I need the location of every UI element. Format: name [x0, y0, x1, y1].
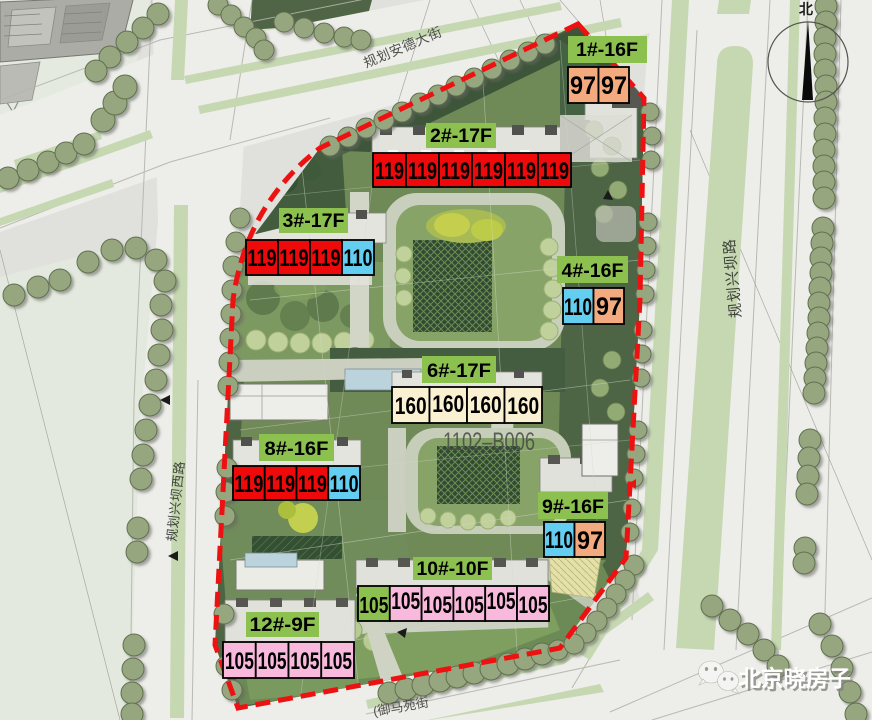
- svg-text:105: 105: [225, 648, 254, 675]
- svg-text:160: 160: [432, 391, 464, 418]
- svg-text:119: 119: [280, 245, 309, 272]
- svg-text:160: 160: [470, 392, 502, 419]
- svg-text:1#-16F: 1#-16F: [576, 40, 638, 61]
- svg-text:105: 105: [359, 592, 388, 618]
- svg-text:105: 105: [258, 648, 287, 675]
- svg-text:4#-16F: 4#-16F: [562, 261, 624, 282]
- svg-text:97: 97: [596, 293, 622, 321]
- svg-text:9#-16F: 9#-16F: [542, 497, 604, 518]
- svg-text:8#-16F: 8#-16F: [265, 439, 329, 460]
- svg-text:119: 119: [298, 471, 327, 498]
- svg-text:119: 119: [266, 471, 295, 498]
- svg-text:160: 160: [507, 393, 539, 420]
- svg-text:97: 97: [601, 72, 627, 100]
- svg-text:119: 119: [441, 158, 470, 185]
- svg-text:110: 110: [344, 245, 373, 272]
- svg-text:119: 119: [375, 158, 404, 185]
- svg-text:105: 105: [455, 592, 484, 619]
- svg-text:2#-17F: 2#-17F: [430, 126, 492, 147]
- svg-text:10#-10F: 10#-10F: [417, 559, 489, 580]
- svg-text:110: 110: [330, 471, 359, 498]
- svg-text:97: 97: [577, 527, 603, 555]
- svg-text:105: 105: [323, 648, 352, 675]
- svg-text:12#-9F: 12#-9F: [250, 615, 316, 636]
- svg-text:119: 119: [234, 471, 263, 498]
- svg-text:6#-17F: 6#-17F: [427, 361, 491, 382]
- svg-text:119: 119: [507, 158, 536, 185]
- svg-text:110: 110: [545, 527, 573, 554]
- svg-text:160: 160: [395, 393, 427, 420]
- svg-text:105: 105: [487, 588, 516, 615]
- svg-text:97: 97: [570, 72, 596, 100]
- svg-text:110: 110: [564, 294, 592, 321]
- svg-text:105: 105: [423, 592, 452, 619]
- svg-text:1102–B006: 1102–B006: [443, 428, 535, 456]
- svg-text:119: 119: [248, 245, 277, 272]
- svg-text:119: 119: [540, 158, 569, 185]
- svg-text:北: 北: [799, 1, 813, 17]
- svg-text:3#-17F: 3#-17F: [283, 211, 345, 232]
- svg-text:119: 119: [408, 158, 437, 185]
- svg-text:105: 105: [290, 648, 319, 675]
- svg-text:105: 105: [519, 592, 548, 619]
- svg-text:119: 119: [474, 158, 503, 185]
- svg-text:北京晓房子: 北京晓房子: [739, 666, 852, 692]
- svg-text:119: 119: [312, 245, 341, 272]
- svg-text:105: 105: [391, 588, 420, 615]
